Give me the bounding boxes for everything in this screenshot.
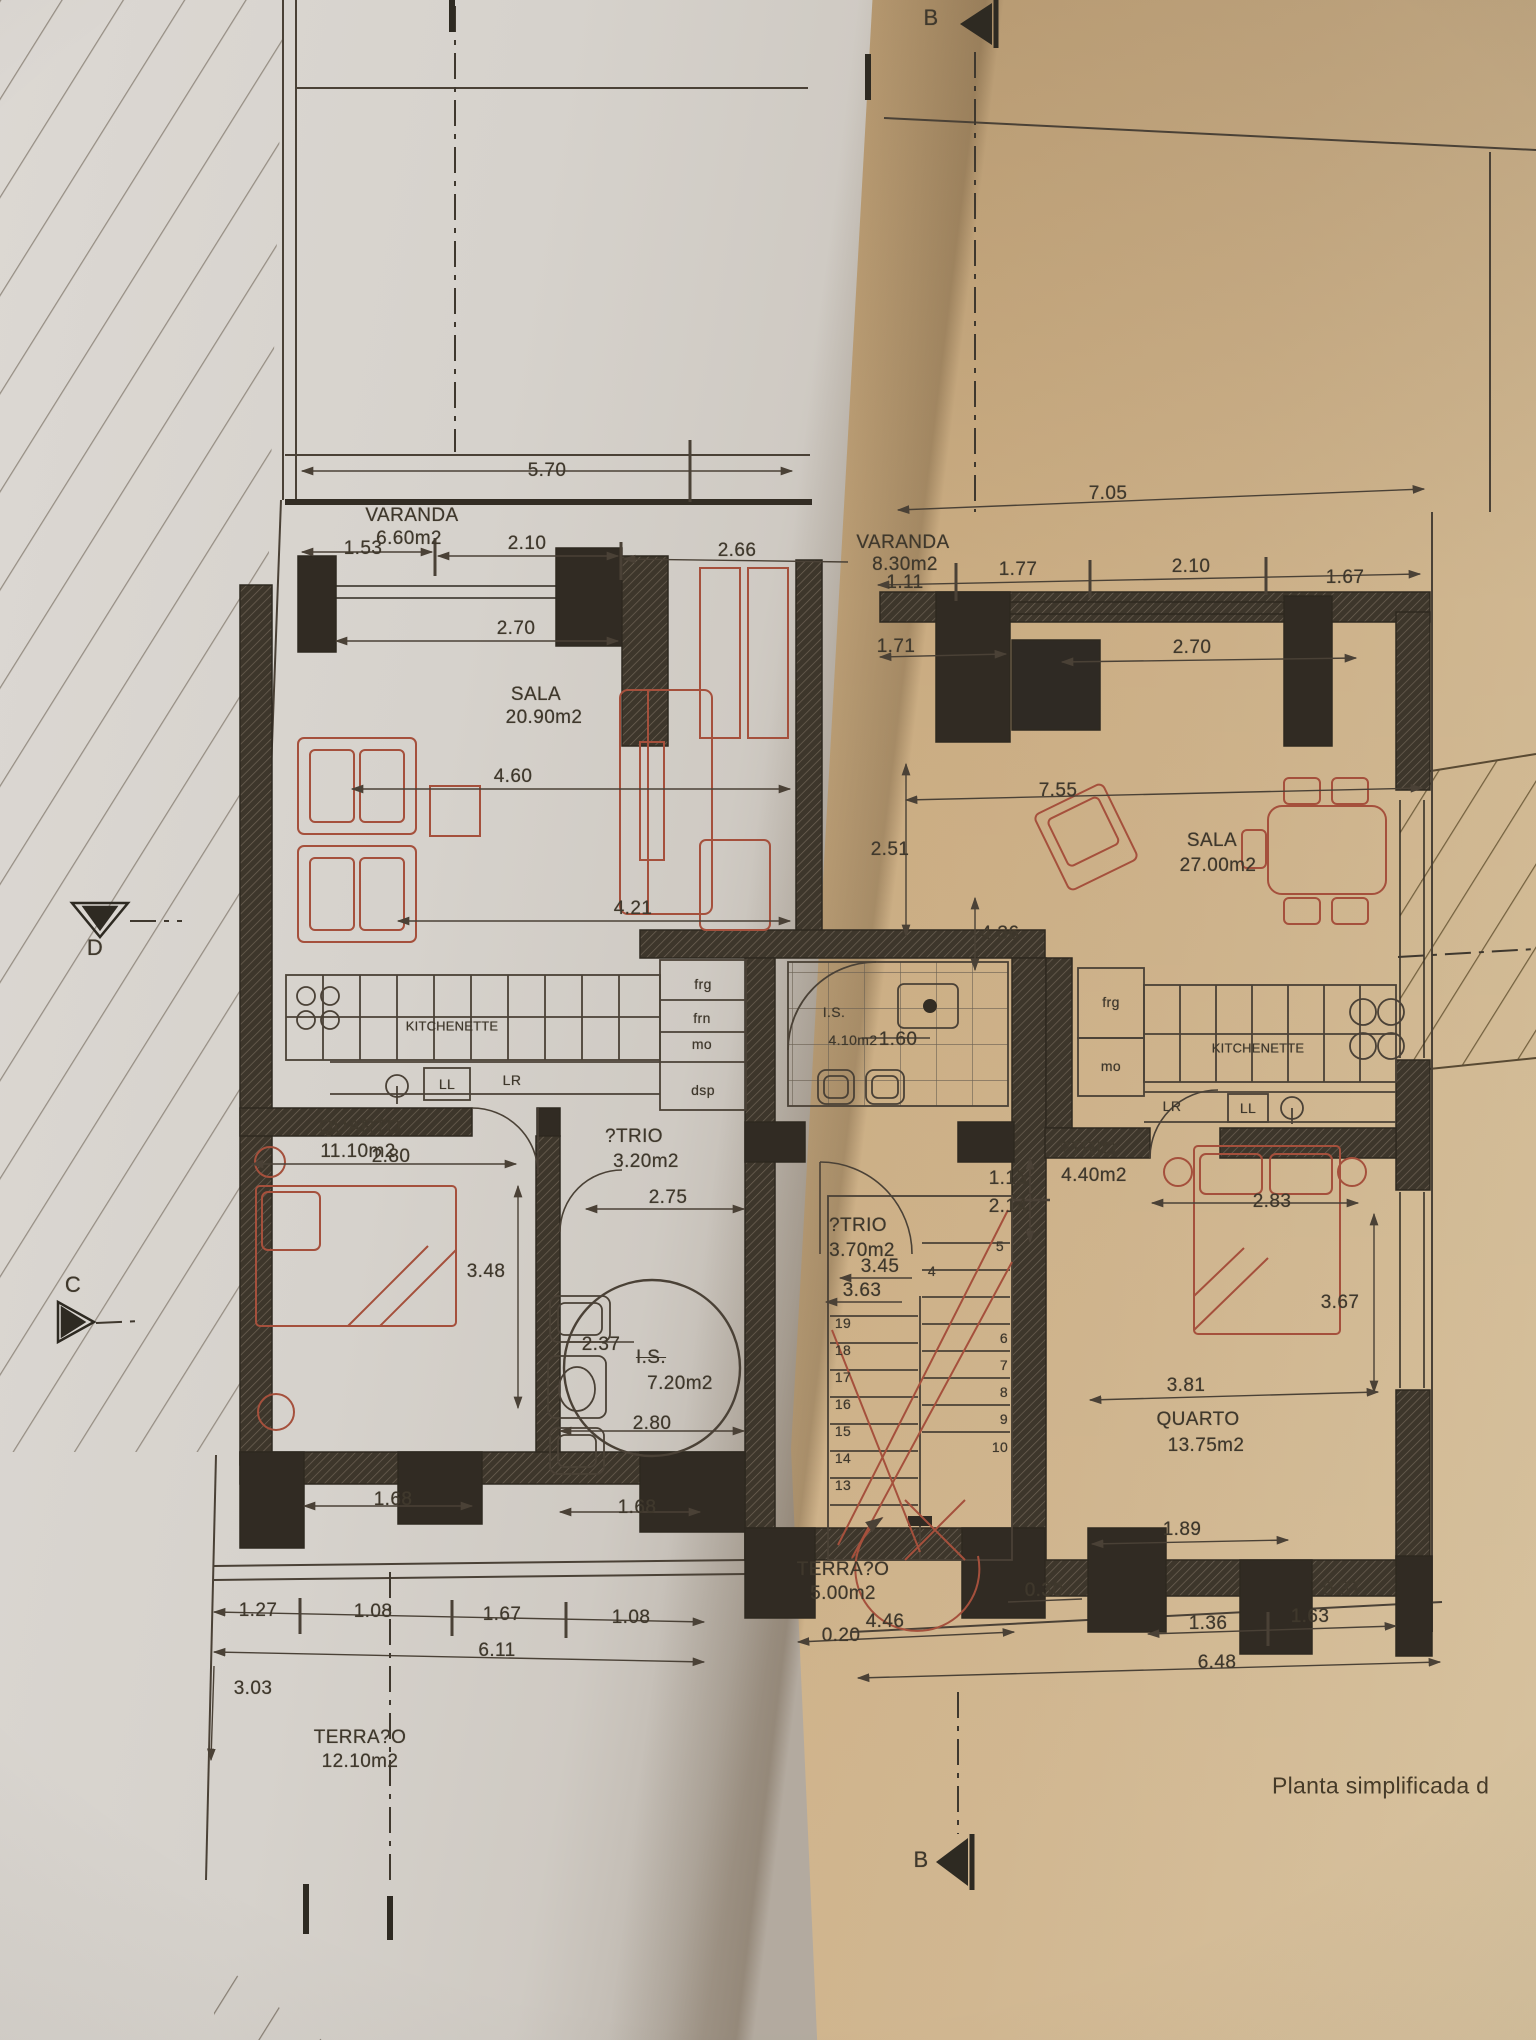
dim-label: 3.67: [1321, 1292, 1360, 1314]
room-label-atrio-left: ?TRIO: [605, 1126, 663, 1148]
appliance-label-frg-left: frg: [694, 976, 712, 992]
room-label-terraco-core: TERRA?O: [797, 1559, 890, 1581]
room-area-is-left: 7.20m2: [647, 1373, 713, 1395]
appliance-label-frg-right: frg: [1102, 994, 1120, 1010]
dim-label: 7.55: [1039, 780, 1078, 802]
section-marker-b-bottom-icon: [936, 1834, 972, 1890]
stair-step-number: 4: [928, 1263, 936, 1279]
plan-caption: Planta simplificada d: [1272, 1773, 1489, 1800]
dim-label: 3.03: [234, 1678, 273, 1700]
axis-ticks: [306, 0, 868, 1940]
appliance-label-lr-right: LR: [1163, 1098, 1182, 1114]
stair-step-number: 18: [835, 1342, 851, 1358]
dim-label: 1.68: [374, 1489, 413, 1511]
dim-label: 1.27: [239, 1600, 278, 1622]
floor-plan-photo: 5.70 VARANDA 6.60m2 1.53 2.10 2.66 2.70 …: [0, 0, 1536, 2040]
dim-label: 1.11: [886, 572, 923, 594]
dim-label: 0.30: [1025, 1580, 1064, 1602]
room-label-varanda-left: VARANDA: [365, 505, 458, 527]
room-label-kitchenette-left: KITCHENETTE: [406, 1019, 498, 1034]
room-label-is-core: I.S.: [823, 1004, 846, 1020]
dim-label: 4.21: [614, 898, 653, 920]
dim-label: 2.80: [633, 1413, 672, 1435]
appliance-label-mo-right: mo: [1101, 1058, 1121, 1074]
dim-label: 3.63: [843, 1280, 882, 1302]
dim-label: 1.08: [354, 1601, 393, 1623]
room-area-atrio-right: 4.40m2: [1061, 1165, 1127, 1187]
dim-label: 1.63: [1291, 1606, 1330, 1628]
stair-step-number: 9: [1000, 1411, 1008, 1427]
dim-label: 0.20: [822, 1625, 861, 1647]
stair-step-number: 19: [835, 1315, 851, 1331]
appliance-label-ll-left: LL: [439, 1076, 455, 1092]
dim-label: 4.46: [866, 1611, 905, 1633]
appliance-label-mo-left: mo: [692, 1036, 712, 1052]
appliance-label-dsp-left: dsp: [691, 1082, 715, 1098]
stair-step-number: 5: [996, 1238, 1004, 1254]
dim-label: 1.08: [612, 1607, 651, 1629]
dim-label: 1.77: [999, 559, 1038, 581]
room-label-quarto-left: QUARTO: [319, 1117, 402, 1139]
stair-step-number: 13: [835, 1477, 851, 1493]
dim-label: 1.68: [618, 1497, 657, 1519]
room-area-sala-right: 27.00m2: [1180, 855, 1257, 877]
dim-label: 2.70: [1173, 637, 1212, 659]
room-label-kitchenette-right: KITCHENETTE: [1212, 1041, 1304, 1056]
stair-step-number: 6: [1000, 1330, 1008, 1346]
room-area-terraco-core: 5.00m2: [810, 1583, 876, 1605]
dim-label: 2.75: [649, 1187, 688, 1209]
room-label-is-left-struck: I.S.: [636, 1347, 666, 1369]
dim-label: 2.51: [871, 839, 910, 861]
room-area-atrio-left: 3.20m2: [613, 1151, 679, 1173]
stair-step-number: 10: [992, 1439, 1008, 1455]
room-label-sala-right: SALA: [1187, 830, 1237, 852]
room-area-is-core: 4.10m2: [828, 1032, 877, 1048]
room-area-varanda-left: 6.60m2: [376, 528, 442, 550]
dim-label: 1.89: [1163, 1519, 1202, 1541]
section-marker-b-top: B: [923, 5, 938, 31]
dim-label: 2.70: [497, 618, 536, 640]
stair-step-number: 17: [835, 1369, 851, 1385]
dim-label: 1.60: [879, 1029, 918, 1051]
room-area-terraco-left: 12.10m2: [322, 1751, 399, 1773]
dim-label: 7.05: [1089, 483, 1128, 505]
stair-step-number: 8: [1000, 1384, 1008, 1400]
dim-label: 1.67: [1326, 567, 1365, 589]
dim-label: 2.10: [1172, 556, 1211, 578]
room-label-quarto-right: QUARTO: [1157, 1409, 1240, 1431]
room-label-sala-left: SALA: [511, 684, 561, 706]
dim-label: 1.36: [1189, 1613, 1228, 1635]
dim-label: 3.48: [467, 1261, 506, 1283]
room-label-atrio-core: ?TRIO: [829, 1215, 887, 1237]
dim-label: 2.80: [372, 1146, 411, 1168]
dim-label: 0.37: [1323, 1579, 1362, 1601]
room-label-terraco-left: TERRA?O: [314, 1727, 407, 1749]
dim-label: 5.70: [528, 460, 567, 482]
section-marker-b-top-icon: [960, 0, 996, 48]
appliance-label-frn-left: frn: [693, 1010, 711, 1026]
room-area-quarto-right: 13.75m2: [1168, 1435, 1245, 1457]
appliance-label-lr-left: LR: [503, 1072, 522, 1088]
section-marker-b-bottom: B: [913, 1847, 928, 1873]
dim-label: 2.37: [582, 1334, 621, 1356]
dim-label: 1.67: [483, 1604, 522, 1626]
dim-label: 2.14: [989, 1196, 1028, 1218]
stair-step-number: 16: [835, 1396, 851, 1412]
dim-label: 3.45: [861, 1256, 900, 1278]
appliance-label-ll-right: LL: [1240, 1100, 1256, 1116]
dim-label: 1.71: [877, 636, 916, 658]
dim-label: 2.66: [718, 540, 757, 562]
stair-step-number: 7: [1000, 1357, 1008, 1373]
stair-step-number: 14: [835, 1450, 851, 1466]
dim-label: 4.60: [494, 766, 533, 788]
stair-step-number: 15: [835, 1423, 851, 1439]
room-label-varanda-right: VARANDA: [856, 532, 949, 554]
dim-label: 3.81: [1167, 1375, 1206, 1397]
dim-label: 1.15: [989, 1168, 1028, 1190]
room-area-sala-left: 20.90m2: [506, 707, 583, 729]
dim-label: 1.53: [344, 538, 383, 560]
dim-label: 4.36: [981, 923, 1020, 945]
dim-label: 2.83: [1253, 1191, 1292, 1213]
dim-label: 6.48: [1198, 1652, 1237, 1674]
section-marker-c: C: [65, 1272, 81, 1298]
dim-label: 2.10: [508, 533, 547, 555]
dim-label: 6.11: [478, 1640, 515, 1662]
section-marker-d: D: [87, 935, 103, 961]
room-label-atrio-right: ?TRIO: [1059, 1139, 1117, 1161]
floor-plan-drawing: [0, 0, 1536, 2040]
